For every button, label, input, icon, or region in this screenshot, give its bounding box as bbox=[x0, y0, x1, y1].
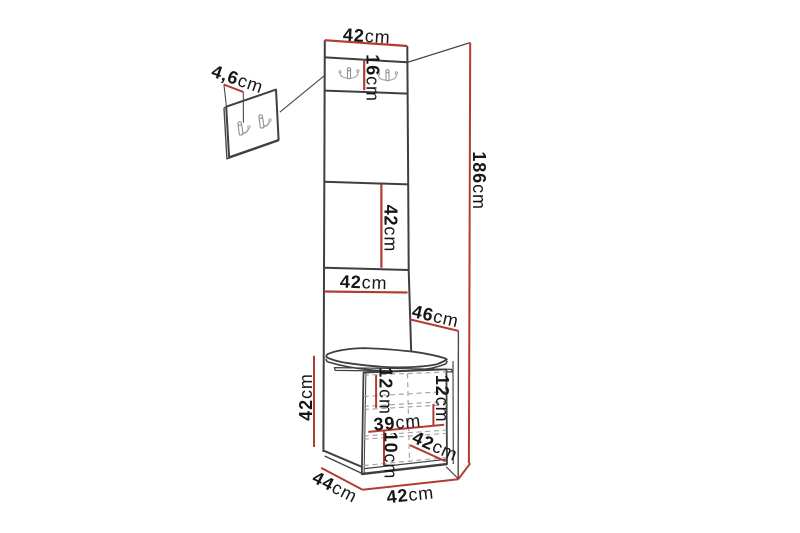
svg-text:186cm: 186cm bbox=[469, 151, 489, 210]
svg-text:42cm: 42cm bbox=[386, 482, 435, 507]
svg-text:44cm: 44cm bbox=[309, 467, 361, 506]
svg-text:10cm: 10cm bbox=[381, 432, 401, 480]
svg-text:12cm: 12cm bbox=[432, 375, 452, 423]
svg-text:42cm: 42cm bbox=[342, 25, 391, 48]
svg-text:16cm: 16cm bbox=[363, 54, 383, 102]
svg-text:4,6cm: 4,6cm bbox=[209, 61, 266, 97]
svg-text:42cm: 42cm bbox=[296, 373, 316, 421]
svg-text:42cm: 42cm bbox=[380, 205, 400, 253]
svg-text:46cm: 46cm bbox=[410, 301, 461, 331]
svg-text:12cm: 12cm bbox=[375, 367, 395, 415]
svg-text:42cm: 42cm bbox=[340, 271, 388, 293]
